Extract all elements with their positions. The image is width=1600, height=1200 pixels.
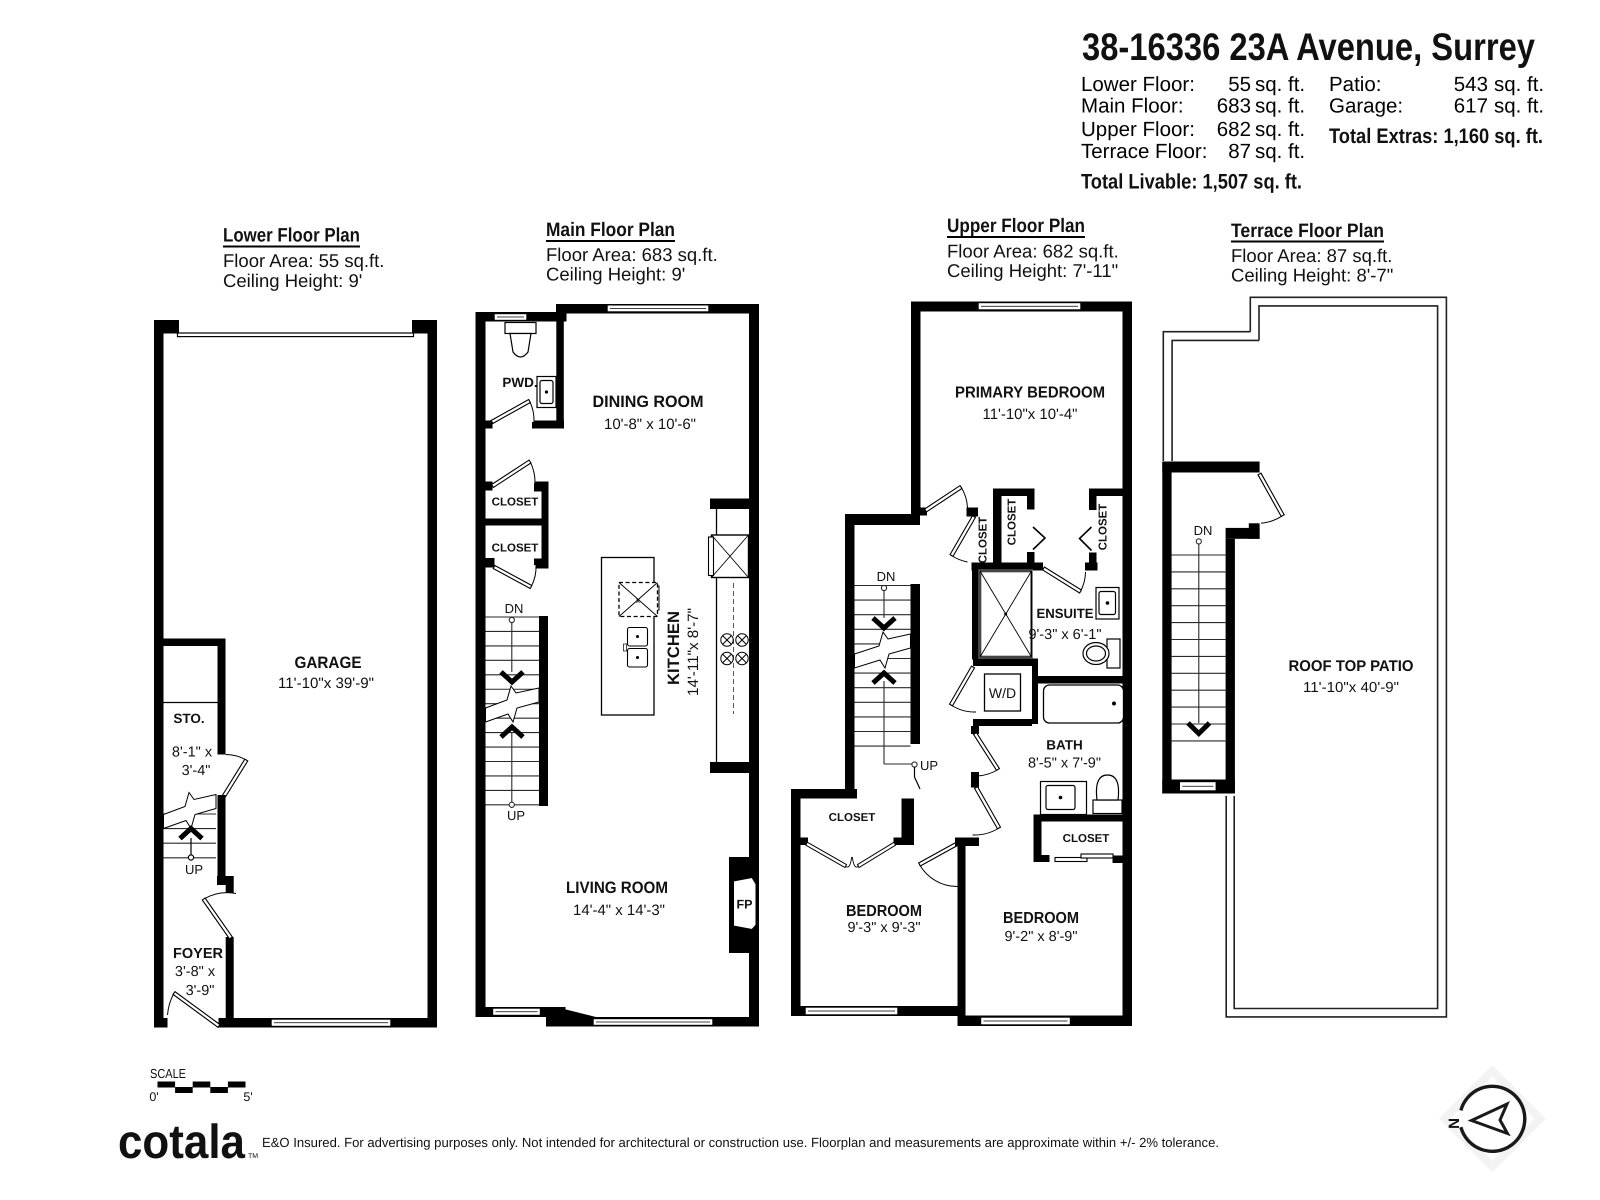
- svg-text:x: x: [636, 596, 640, 605]
- svg-text:KITCHEN: KITCHEN: [665, 611, 683, 685]
- svg-text:543: 543: [1454, 73, 1488, 96]
- svg-text:38-16336 23A Avenue, Surrey: 38-16336 23A Avenue, Surrey: [1082, 26, 1535, 69]
- svg-text:E&O Insured. For advertising p: E&O Insured. For advertising purposes on…: [262, 1135, 1219, 1150]
- svg-text:Main Floor:: Main Floor:: [1081, 95, 1184, 118]
- svg-text:PWD.: PWD.: [502, 375, 537, 390]
- svg-text:CLOSET: CLOSET: [1098, 504, 1110, 551]
- svg-text:ENSUITE: ENSUITE: [1037, 606, 1094, 621]
- svg-text:Upper Floor:: Upper Floor:: [1081, 118, 1195, 141]
- svg-text:8'-5" x 7'-9": 8'-5" x 7'-9": [1028, 756, 1101, 772]
- svg-text:N: N: [1446, 1118, 1463, 1129]
- svg-text:BATH: BATH: [1046, 738, 1083, 753]
- svg-text:CLOSET: CLOSET: [978, 517, 990, 564]
- svg-text:sq. ft.: sq. ft.: [1255, 140, 1305, 163]
- svg-text:55: 55: [1228, 73, 1251, 96]
- svg-text:5': 5': [243, 1090, 252, 1104]
- svg-text:Floor Area: 55 sq.ft.: Floor Area: 55 sq.ft.: [223, 250, 384, 271]
- svg-text:FP: FP: [737, 898, 753, 912]
- svg-text:BEDROOM: BEDROOM: [846, 903, 922, 920]
- svg-text:9'-2" x 8'-9": 9'-2" x 8'-9": [1004, 929, 1077, 945]
- svg-text:ROOF TOP PATIO: ROOF TOP PATIO: [1289, 658, 1414, 675]
- svg-text:Terrace Floor:: Terrace Floor:: [1081, 140, 1207, 163]
- svg-text:cotala: cotala: [118, 1116, 245, 1169]
- svg-text:11'-10"x 40'-9": 11'-10"x 40'-9": [1303, 680, 1399, 696]
- svg-text:9'-3" x 9'-3": 9'-3" x 9'-3": [847, 920, 920, 936]
- svg-text:Ceiling Height: 7'-11": Ceiling Height: 7'-11": [947, 260, 1118, 281]
- svg-text:sq. ft.: sq. ft.: [1494, 73, 1544, 96]
- svg-text:3'-9": 3'-9": [186, 983, 215, 999]
- svg-text:CLOSET: CLOSET: [1007, 499, 1019, 546]
- svg-text:Total Extras: 1,160 sq. ft.: Total Extras: 1,160 sq. ft.: [1329, 125, 1543, 148]
- svg-text:3'-8" x: 3'-8" x: [175, 964, 216, 980]
- svg-text:Garage:: Garage:: [1329, 95, 1403, 118]
- svg-text:11'-10"x 39'-9": 11'-10"x 39'-9": [278, 675, 374, 692]
- svg-text:sq. ft.: sq. ft.: [1255, 95, 1305, 118]
- svg-text:sq. ft.: sq. ft.: [1255, 118, 1305, 141]
- svg-text:DN: DN: [1194, 523, 1213, 538]
- svg-text:14'-4" x 14'-3": 14'-4" x 14'-3": [573, 902, 665, 919]
- svg-text:8'-1" x: 8'-1" x: [172, 745, 213, 761]
- svg-text:CLOSET: CLOSET: [492, 543, 539, 555]
- svg-text:CLOSET: CLOSET: [829, 812, 876, 824]
- svg-text:UP: UP: [920, 758, 938, 773]
- svg-text:Ceiling Height: 9': Ceiling Height: 9': [546, 264, 685, 285]
- svg-text:682: 682: [1217, 118, 1251, 141]
- svg-text:DN: DN: [877, 569, 896, 584]
- svg-text:Patio:: Patio:: [1329, 73, 1381, 96]
- svg-text:Lower Floor:: Lower Floor:: [1081, 73, 1195, 96]
- svg-text:0': 0': [149, 1090, 158, 1104]
- svg-text:683: 683: [1217, 95, 1251, 118]
- svg-text:CLOSET: CLOSET: [492, 497, 539, 509]
- svg-text:10'-8" x 10'-6": 10'-8" x 10'-6": [604, 416, 696, 433]
- svg-text:PRIMARY BEDROOM: PRIMARY BEDROOM: [955, 385, 1105, 402]
- svg-text:Lower Floor Plan: Lower Floor Plan: [223, 225, 360, 247]
- svg-text:Floor Area: 87 sq.ft.: Floor Area: 87 sq.ft.: [1231, 245, 1392, 266]
- svg-text:Total Livable: 1,507 sq. ft.: Total Livable: 1,507 sq. ft.: [1081, 171, 1302, 194]
- svg-text:Floor Area: 682 sq.ft.: Floor Area: 682 sq.ft.: [947, 241, 1119, 262]
- svg-text:W/D: W/D: [989, 685, 1016, 701]
- svg-text:11'-10"x 10'-4": 11'-10"x 10'-4": [983, 406, 1078, 423]
- svg-text:BEDROOM: BEDROOM: [1003, 910, 1079, 927]
- svg-text:LIVING ROOM: LIVING ROOM: [566, 879, 668, 897]
- svg-text:FOYER: FOYER: [173, 946, 223, 962]
- svg-text:sq. ft.: sq. ft.: [1255, 73, 1305, 96]
- svg-text:STO.: STO.: [173, 711, 204, 726]
- svg-text:GARAGE: GARAGE: [295, 654, 362, 672]
- svg-text:Ceiling Height: 8'-7": Ceiling Height: 8'-7": [1231, 265, 1393, 286]
- svg-text:DN: DN: [505, 601, 524, 616]
- svg-text:3'-4": 3'-4": [182, 763, 211, 779]
- svg-text:617: 617: [1454, 95, 1488, 118]
- svg-text:sq. ft.: sq. ft.: [1494, 95, 1544, 118]
- svg-text:87: 87: [1228, 140, 1251, 163]
- svg-text:14'-11"x 8'-7": 14'-11"x 8'-7": [685, 608, 702, 696]
- svg-text:Terrace Floor Plan: Terrace Floor Plan: [1231, 220, 1384, 242]
- svg-text:Main Floor Plan: Main Floor Plan: [546, 219, 675, 241]
- svg-text:Ceiling Height: 9': Ceiling Height: 9': [223, 270, 362, 291]
- svg-text:DINING ROOM: DINING ROOM: [593, 393, 704, 411]
- svg-text:9'-3" x 6'-1": 9'-3" x 6'-1": [1028, 627, 1101, 643]
- svg-text:SCALE: SCALE: [150, 1066, 186, 1081]
- svg-text:TM: TM: [248, 1153, 258, 1160]
- svg-text:Floor Area: 683 sq.ft.: Floor Area: 683 sq.ft.: [546, 244, 718, 265]
- svg-text:UP: UP: [507, 808, 525, 823]
- svg-text:Upper Floor Plan: Upper Floor Plan: [947, 215, 1085, 237]
- svg-text:CLOSET: CLOSET: [1063, 833, 1110, 845]
- svg-text:UP: UP: [185, 862, 203, 877]
